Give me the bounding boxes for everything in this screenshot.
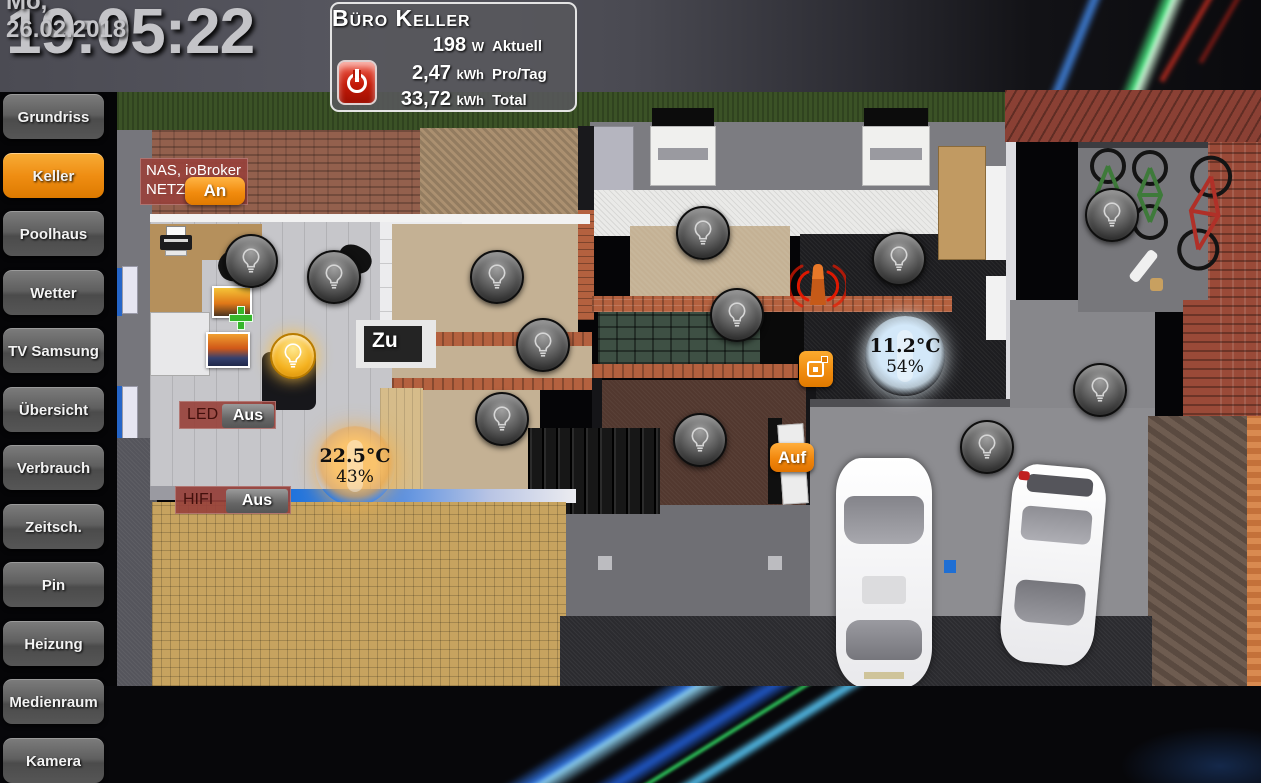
bottom-band — [0, 686, 1261, 783]
wood-deck — [1148, 416, 1261, 688]
floor-marker — [768, 556, 782, 570]
floor-marker — [598, 556, 612, 570]
printer-slot — [164, 239, 188, 242]
sidebar-item-wetter[interactable]: Wetter — [3, 270, 104, 315]
window-well-slab — [652, 108, 714, 126]
temperature-value: 11.2°C — [870, 335, 941, 357]
light-bulb-icon[interactable] — [872, 232, 926, 286]
light-bulb-icon[interactable] — [224, 234, 278, 288]
sidebar-item-grundriss[interactable]: Grundriss — [3, 94, 104, 139]
cabinet — [938, 146, 986, 260]
window-well-grate — [658, 148, 708, 160]
rear-window — [846, 620, 922, 660]
humidity-value: 43% — [336, 467, 374, 487]
sidebar-item-uebersicht[interactable]: Übersicht — [3, 387, 104, 432]
smart-home-dashboard: NAS, ioBroker NETZ An LED Aus HIFI Aus Z… — [0, 0, 1261, 783]
rf-antenna-icon — [790, 256, 846, 318]
corner-glow — [1120, 726, 1261, 783]
plug-badge — [821, 356, 828, 363]
hifi-label: HIFI — [183, 491, 213, 509]
temperature-value: 22.5°C — [320, 445, 391, 467]
smart-plug-button[interactable] — [799, 351, 833, 387]
nas-network-panel: NAS, ioBroker NETZ An — [140, 158, 248, 205]
deck-edge — [1247, 416, 1261, 688]
garage-door-button[interactable]: Auf — [770, 443, 814, 472]
add-photo-icon[interactable] — [229, 306, 253, 330]
car-left — [836, 458, 932, 688]
roof-brick — [1005, 90, 1261, 142]
printer-icon — [160, 226, 192, 258]
power-current: 198 W — [433, 34, 484, 57]
energy-per-day: 2,47 kWh — [412, 62, 484, 85]
sunroof — [862, 576, 906, 604]
sidebar-item-pin[interactable]: Pin — [3, 562, 104, 607]
plus-h — [229, 314, 253, 322]
floor-marker-blue — [944, 560, 956, 573]
energy-total: 33,72 kWh — [401, 88, 484, 111]
garage-door-top — [152, 502, 566, 686]
power-current-label: Aktuell — [492, 38, 542, 55]
light-bulb-icon[interactable] — [470, 250, 524, 304]
sidebar-item-tv-samsung[interactable]: TV Samsung — [3, 328, 104, 373]
hifi-toggle-button[interactable]: Aus — [226, 489, 288, 513]
light-bulb-icon[interactable] — [673, 413, 727, 467]
roof-window — [1020, 505, 1093, 545]
light-bulb-icon[interactable] — [516, 318, 570, 372]
door-white — [986, 276, 1006, 340]
light-bulb-icon[interactable] — [1085, 188, 1139, 242]
sidebar-item-heizung[interactable]: Heizung — [3, 621, 104, 666]
cellar-door-status[interactable]: Zu — [372, 329, 398, 353]
brick-wall — [592, 296, 952, 312]
power-glyph — [347, 73, 367, 93]
basement-window — [122, 266, 138, 314]
humidity-value: 54% — [886, 357, 924, 377]
patio-weave — [420, 128, 590, 228]
sidebar-item-poolhaus[interactable]: Poolhaus — [3, 211, 104, 256]
power-icon[interactable] — [337, 60, 377, 105]
window-well-slab — [864, 108, 928, 126]
light-bulb-icon[interactable] — [710, 288, 764, 342]
side-table — [150, 312, 210, 376]
energy-total-label: Total — [492, 92, 527, 109]
brick-wall — [592, 364, 798, 378]
printer-tray — [165, 250, 187, 256]
windshield — [1013, 579, 1086, 627]
floorplan-keller — [0, 0, 1261, 783]
light-bulb-icon[interactable] — [307, 250, 361, 304]
sidebar-item-zeitsch[interactable]: Zeitsch. — [3, 504, 104, 549]
led-panel: LED Aus — [179, 401, 276, 429]
sidebar-item-medienraum[interactable]: Medienraum — [3, 679, 104, 724]
light-bulb-on-icon[interactable] — [270, 333, 316, 379]
bike-green-icon — [1128, 148, 1172, 248]
temperature-display-garage: 11.2°C 54% — [865, 316, 945, 396]
photo-thumbnail[interactable] — [206, 332, 250, 368]
led-toggle-button[interactable]: Aus — [222, 404, 274, 428]
sidebar-item-verbrauch[interactable]: Verbrauch — [3, 445, 104, 490]
sidebar-item-keller[interactable]: Keller — [3, 153, 104, 198]
window-well-grate — [870, 148, 922, 160]
rear-window — [1026, 473, 1093, 497]
light-bulb-icon[interactable] — [475, 392, 529, 446]
energy-per-day-label: Pro/Tag — [492, 66, 547, 83]
windshield — [844, 496, 924, 544]
stairwell-void — [760, 312, 804, 366]
tail-light — [1018, 471, 1030, 481]
basement-window — [122, 386, 138, 442]
plug-dot — [813, 367, 818, 372]
panel-title: Büro Keller — [332, 5, 471, 32]
light-bulb-icon[interactable] — [676, 206, 730, 260]
clock-date: Mo, 26.02.2018 — [6, 0, 126, 44]
temperature-display-office: 22.5°C 43% — [315, 426, 395, 506]
printer-body — [160, 235, 192, 250]
door-white — [986, 166, 1006, 260]
wall-dark — [578, 126, 594, 212]
led-label: LED — [187, 406, 218, 424]
scooter-bag — [1150, 278, 1163, 291]
nas-power-toggle-button[interactable]: An — [185, 177, 245, 205]
license-plate — [864, 672, 904, 679]
hifi-panel: HIFI Aus — [175, 486, 291, 514]
car-right — [998, 462, 1109, 667]
sidebar-item-kamera[interactable]: Kamera — [3, 738, 104, 783]
energy-info-panel: Büro Keller 198 W Aktuell 2,47 kWh Pro/T… — [330, 2, 577, 112]
light-bulb-icon[interactable] — [960, 420, 1014, 474]
light-bulb-icon[interactable] — [1073, 363, 1127, 417]
